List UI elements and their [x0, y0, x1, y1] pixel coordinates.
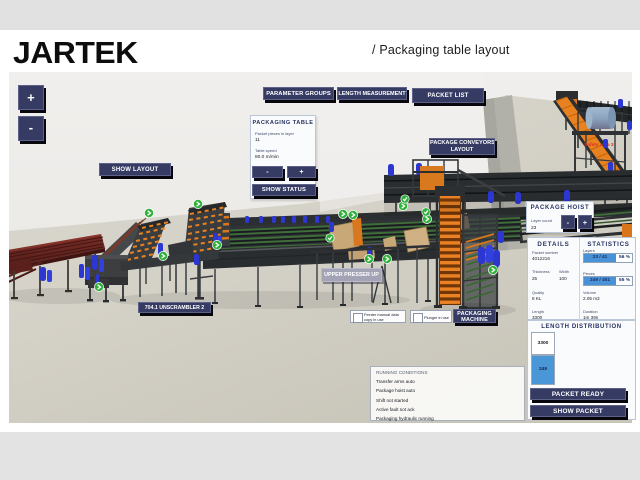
- svg-text:Safety area 3: Safety area 3: [584, 142, 614, 148]
